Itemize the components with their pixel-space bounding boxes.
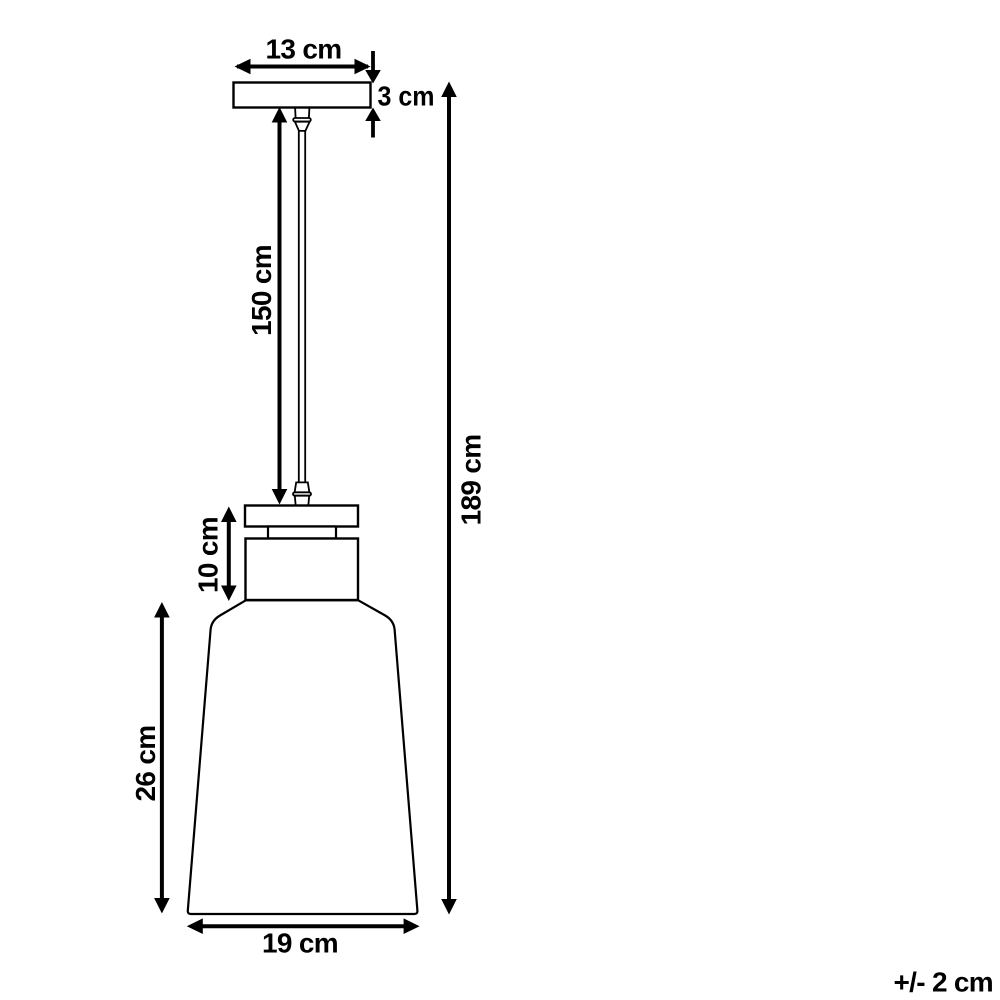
svg-text:10 cm: 10 cm — [192, 517, 223, 593]
svg-text:26 cm: 26 cm — [130, 726, 161, 802]
svg-text:189 cm: 189 cm — [456, 435, 487, 526]
svg-text:13 cm: 13 cm — [266, 34, 342, 65]
svg-text:3 cm: 3 cm — [378, 81, 435, 112]
svg-text:19 cm: 19 cm — [262, 928, 338, 959]
svg-text:150 cm: 150 cm — [246, 245, 277, 336]
svg-text:+/- 2 cm: +/- 2 cm — [894, 967, 993, 998]
